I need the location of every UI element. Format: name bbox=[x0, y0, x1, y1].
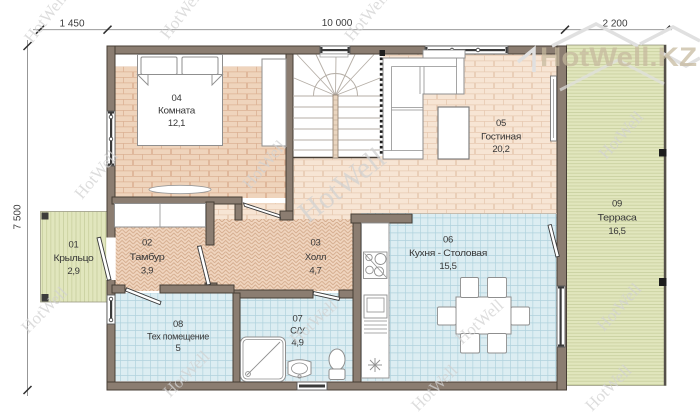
svg-text:20,2: 20,2 bbox=[492, 144, 509, 155]
svg-text:Холл: Холл bbox=[305, 252, 326, 263]
svg-text:09: 09 bbox=[612, 199, 622, 210]
svg-text:Тамбур: Тамбур bbox=[130, 252, 165, 263]
svg-text:5: 5 bbox=[176, 343, 181, 354]
svg-text:01: 01 bbox=[69, 240, 79, 251]
svg-text:2,9: 2,9 bbox=[67, 266, 79, 277]
svg-text:06: 06 bbox=[443, 235, 453, 246]
svg-text:15,5: 15,5 bbox=[439, 261, 456, 272]
svg-text:02: 02 bbox=[142, 238, 152, 249]
svg-text:03: 03 bbox=[311, 238, 321, 249]
svg-text:Гостиная: Гостиная bbox=[481, 132, 521, 143]
svg-text:7 500: 7 500 bbox=[13, 204, 24, 229]
svg-text:05: 05 bbox=[496, 118, 506, 129]
svg-text:Крыльцо: Крыльцо bbox=[54, 253, 94, 264]
svg-text:Терраса: Терраса bbox=[598, 213, 638, 224]
svg-text:4,7: 4,7 bbox=[309, 266, 321, 277]
svg-text:HotWell.KZ: HotWell.KZ bbox=[540, 42, 697, 72]
svg-text:Комната: Комната bbox=[158, 106, 196, 117]
svg-text:3,9: 3,9 bbox=[141, 266, 153, 277]
svg-text:04: 04 bbox=[172, 93, 182, 104]
svg-text:16,5: 16,5 bbox=[608, 226, 625, 237]
svg-text:12,1: 12,1 bbox=[168, 118, 185, 129]
svg-text:08: 08 bbox=[173, 319, 183, 330]
svg-text:Кухня - Столовая: Кухня - Столовая bbox=[409, 248, 487, 259]
svg-text:Тех помещение: Тех помещение bbox=[147, 332, 209, 343]
svg-text:1 450: 1 450 bbox=[59, 19, 84, 30]
